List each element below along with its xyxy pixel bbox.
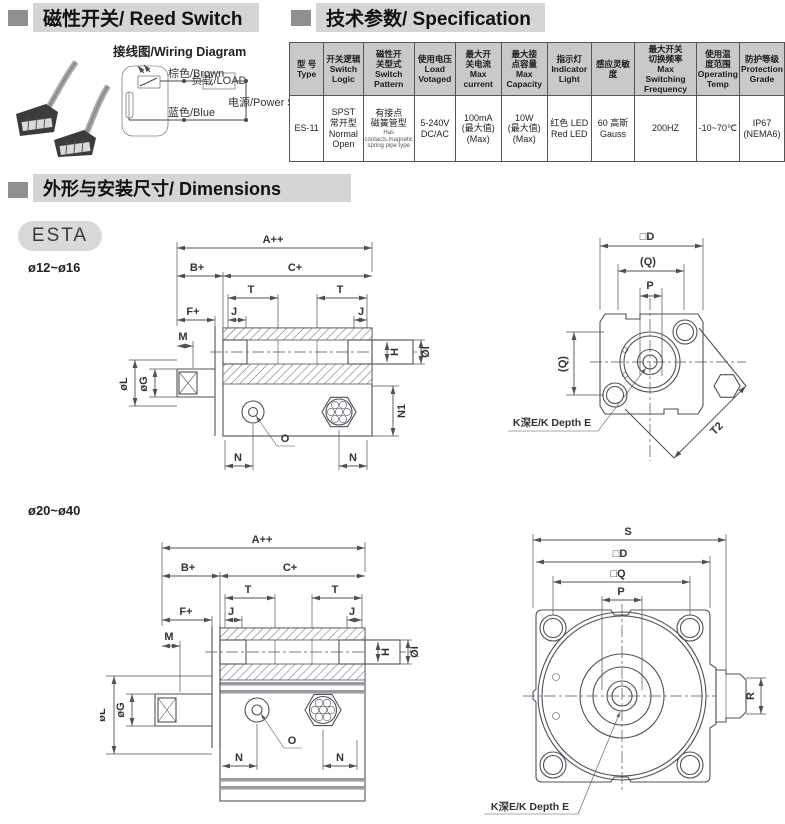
port-fitting xyxy=(716,670,746,722)
sensor-groove xyxy=(220,778,365,782)
col-indicator-light: 指示灯 Indicator Light xyxy=(547,43,591,96)
dim-label-o: O xyxy=(288,735,297,747)
dim-label-m: M xyxy=(178,331,187,343)
dim-label-q: (Q) xyxy=(640,256,656,268)
dim-label-og: øG xyxy=(138,376,150,391)
mounting-hole xyxy=(242,401,264,423)
end-view-drawing-small: □D (Q) P T2 (Q) K深E/ xyxy=(478,226,778,476)
dim-label-b: B+ xyxy=(181,562,195,574)
dim-label-r: R xyxy=(745,692,757,700)
hex-plug xyxy=(305,694,341,725)
dim-label-b: B+ xyxy=(190,262,204,274)
col-load-voltage: 使用电压 Load Votaged xyxy=(414,43,455,96)
dim-label-m: M xyxy=(164,631,173,643)
col-max-capacity: 最大接 点容量 Max Capacity xyxy=(501,43,547,96)
dim-label-sq-q: □Q xyxy=(610,568,626,580)
col-operating-temp: 使用温 度范围 Operating Temp xyxy=(696,43,739,96)
dim-label-sq-d: □D xyxy=(613,548,628,560)
dim-label-q: (Q) xyxy=(557,356,569,372)
dim-label-t: T xyxy=(337,284,344,296)
hatch-section xyxy=(220,628,365,640)
dim-label-f: F+ xyxy=(179,606,192,618)
dim-label-p: P xyxy=(646,280,653,292)
cell-indicator-light: 红色 LED Red LED xyxy=(547,96,591,162)
section-bullet-icon xyxy=(291,10,311,26)
reed-switch-photo xyxy=(4,52,112,157)
dim-label-sq-d: □D xyxy=(640,231,655,243)
model-label-small: ø12~ø16 xyxy=(28,260,80,275)
dim-label-j: J xyxy=(349,606,355,618)
col-switch-logic: 开关逻辑 Switch Logic xyxy=(324,43,363,96)
switch-pattern-main: 有接点 磁簧管型 xyxy=(371,108,407,129)
k-depth-label: K深E/K Depth E xyxy=(513,416,591,429)
section-title-reed-switch: 磁性开关/ Reed Switch xyxy=(33,3,259,32)
mounting-hole xyxy=(245,698,269,722)
dim-label-og: øG xyxy=(115,702,127,717)
power-supply-label: 电源/Power Supply xyxy=(228,95,290,109)
cell-max-capacity: 10W (最大值) (Max) xyxy=(501,96,547,162)
reed-switch-title-text: 磁性开关/ Reed Switch xyxy=(43,4,243,31)
side-view-drawing-large: A++ B+ C+ T T J J F+ M H xyxy=(100,528,435,818)
dim-label-h: H xyxy=(380,648,392,656)
dim-label-j: J xyxy=(358,306,364,318)
reed-switch-body xyxy=(54,130,96,157)
dim-label-t2: T2 xyxy=(708,420,726,438)
col-switch-pattern: 磁性开 关型式 Switch Pattern xyxy=(363,43,414,96)
sensor-groove xyxy=(220,786,365,790)
cell-max-switching-frequency: 200HZ xyxy=(635,96,696,162)
col-sensitivity: 感应灵敏度 xyxy=(591,43,635,96)
spec-header-row: 型 号 Type 开关逻辑 Switch Logic 磁性开 关型式 Switc… xyxy=(290,43,785,96)
sensor-groove xyxy=(220,690,365,694)
col-max-switching-frequency: 最大开关 切换频率 Max Switching Frequency xyxy=(635,43,696,96)
wiring-diagram: 负载/LOAD 棕色/Brown 电源/Power Supply 蓝色/Blue xyxy=(110,58,290,146)
brown-wire-label: 棕色/Brown xyxy=(168,66,224,80)
blue-wire-label: 蓝色/Blue xyxy=(168,105,215,119)
dim-label-a: A++ xyxy=(263,234,284,246)
dim-label-t: T xyxy=(332,584,339,596)
hatch-section xyxy=(223,328,372,340)
dim-label-oi: ØI xyxy=(420,346,431,358)
col-max-current: 最大开 关电流 Max current xyxy=(455,43,501,96)
dim-label-j: J xyxy=(228,606,234,618)
dim-label-n: N xyxy=(349,452,357,464)
model-label-large: ø20~ø40 xyxy=(28,503,80,518)
cell-type: ES-11 xyxy=(290,96,324,162)
hatch-section xyxy=(220,664,365,680)
dim-label-n: N xyxy=(235,752,243,764)
dim-label-t: T xyxy=(248,284,255,296)
dim-label-n1: N1 xyxy=(396,404,408,418)
spec-data-row: ES-11 SPST 常开型 Normal Open 有接点 磁簧管型 Has … xyxy=(290,96,785,162)
cell-sensitivity: 60 高斯 Gauss xyxy=(591,96,635,162)
datasheet-page: 磁性开关/ Reed Switch 技术参数/ Specification xyxy=(0,0,785,824)
dim-label-ol: øL xyxy=(118,377,130,391)
k-depth-label: K深E/K Depth E xyxy=(491,800,569,813)
col-type: 型 号 Type xyxy=(290,43,324,96)
reed-switch-cable xyxy=(48,62,76,108)
cell-load-voltage: 5-240V DC/AC xyxy=(414,96,455,162)
hatch-section xyxy=(223,364,372,384)
hex-fitting xyxy=(714,375,740,398)
dim-label-oi: ØI xyxy=(409,646,421,658)
series-badge: ESTA xyxy=(18,221,102,251)
dim-label-n: N xyxy=(336,752,344,764)
dim-label-a: A++ xyxy=(252,534,273,546)
reed-element xyxy=(126,92,133,118)
sensor-groove xyxy=(220,682,365,686)
col-protection-grade: 防护等级 Protection Grade xyxy=(739,43,784,96)
reed-switch-cable xyxy=(86,86,108,134)
dim-label-j: J xyxy=(231,306,237,318)
side-view-drawing-small: A++ B+ C+ T T J J F+ M H ØI xyxy=(115,228,431,478)
cell-protection-grade: IP67 (NEMA6) xyxy=(739,96,784,162)
dim-label-p: P xyxy=(617,586,624,598)
dim-label-n: N xyxy=(234,452,242,464)
section-title-dimensions: 外形与安装尺寸/ Dimensions xyxy=(33,174,351,202)
dim-label-c: C+ xyxy=(283,562,297,574)
switch-pattern-sub: Has contacts,magnetic spring pipe type xyxy=(365,130,413,150)
specification-title-text: 技术参数/ Specification xyxy=(326,4,531,31)
section-title-specification: 技术参数/ Specification xyxy=(316,3,545,32)
led-arrow-icon xyxy=(138,66,144,73)
dimensions-title-text: 外形与安装尺寸/ Dimensions xyxy=(43,175,281,201)
dim-label-f: F+ xyxy=(186,306,199,318)
series-name: ESTA xyxy=(32,225,88,247)
dim-label-h: H xyxy=(389,348,401,356)
cell-max-current: 100mA (最大值) (Max) xyxy=(455,96,501,162)
body-plate xyxy=(600,314,703,414)
dim-label-t: T xyxy=(245,584,252,596)
dim-label-o: O xyxy=(281,433,290,445)
dim-label-ol: øL xyxy=(100,708,108,722)
cell-switch-pattern: 有接点 磁簧管型 Has contacts,magnetic spring pi… xyxy=(363,96,414,162)
specification-table: 型 号 Type 开关逻辑 Switch Logic 磁性开 关型式 Switc… xyxy=(289,42,785,162)
cell-switch-logic: SPST 常开型 Normal Open xyxy=(324,96,363,162)
section-bullet-icon xyxy=(8,10,28,26)
cell-operating-temp: -10~70℃ xyxy=(696,96,739,162)
reed-switch-body xyxy=(16,104,58,136)
section-bullet-icon xyxy=(8,182,28,198)
end-view-drawing-large: S □D □Q P R K深E xyxy=(468,520,785,820)
dim-label-c: C+ xyxy=(288,262,302,274)
dim-label-s: S xyxy=(624,526,631,538)
